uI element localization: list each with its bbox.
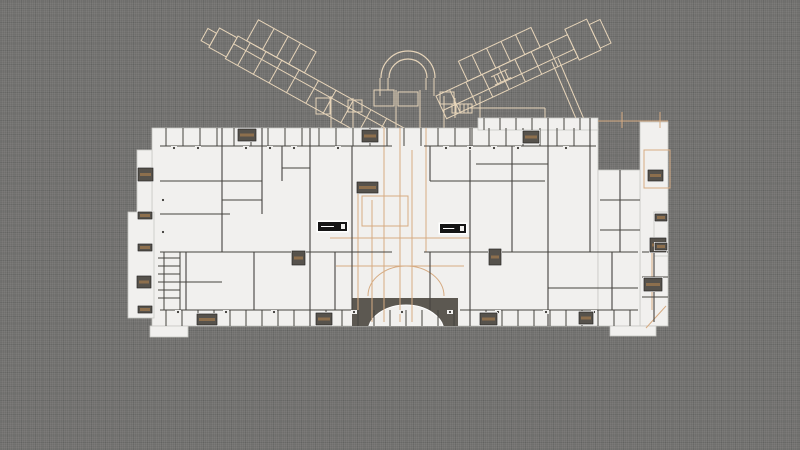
core-block xyxy=(237,128,257,142)
core-block xyxy=(137,243,153,252)
core-block xyxy=(643,277,663,292)
core-block xyxy=(196,313,218,326)
core-block xyxy=(647,169,664,182)
core-block xyxy=(522,130,540,144)
core-block xyxy=(654,242,668,251)
core-block xyxy=(137,305,153,314)
core-block xyxy=(356,181,379,194)
core-block xyxy=(578,311,594,325)
core-block xyxy=(315,312,333,326)
core-block xyxy=(291,250,306,266)
core-block xyxy=(488,248,502,266)
core-block xyxy=(361,129,379,143)
stair-core xyxy=(439,223,468,235)
core-block xyxy=(654,213,668,222)
core-block xyxy=(136,275,152,289)
apse-rotunda xyxy=(352,298,458,359)
core-block xyxy=(137,211,153,220)
core-block xyxy=(479,312,498,326)
floor-plan-drawing xyxy=(0,0,800,450)
core-block xyxy=(137,167,154,182)
cad-viewport[interactable] xyxy=(0,0,800,450)
stair-core xyxy=(317,221,349,233)
